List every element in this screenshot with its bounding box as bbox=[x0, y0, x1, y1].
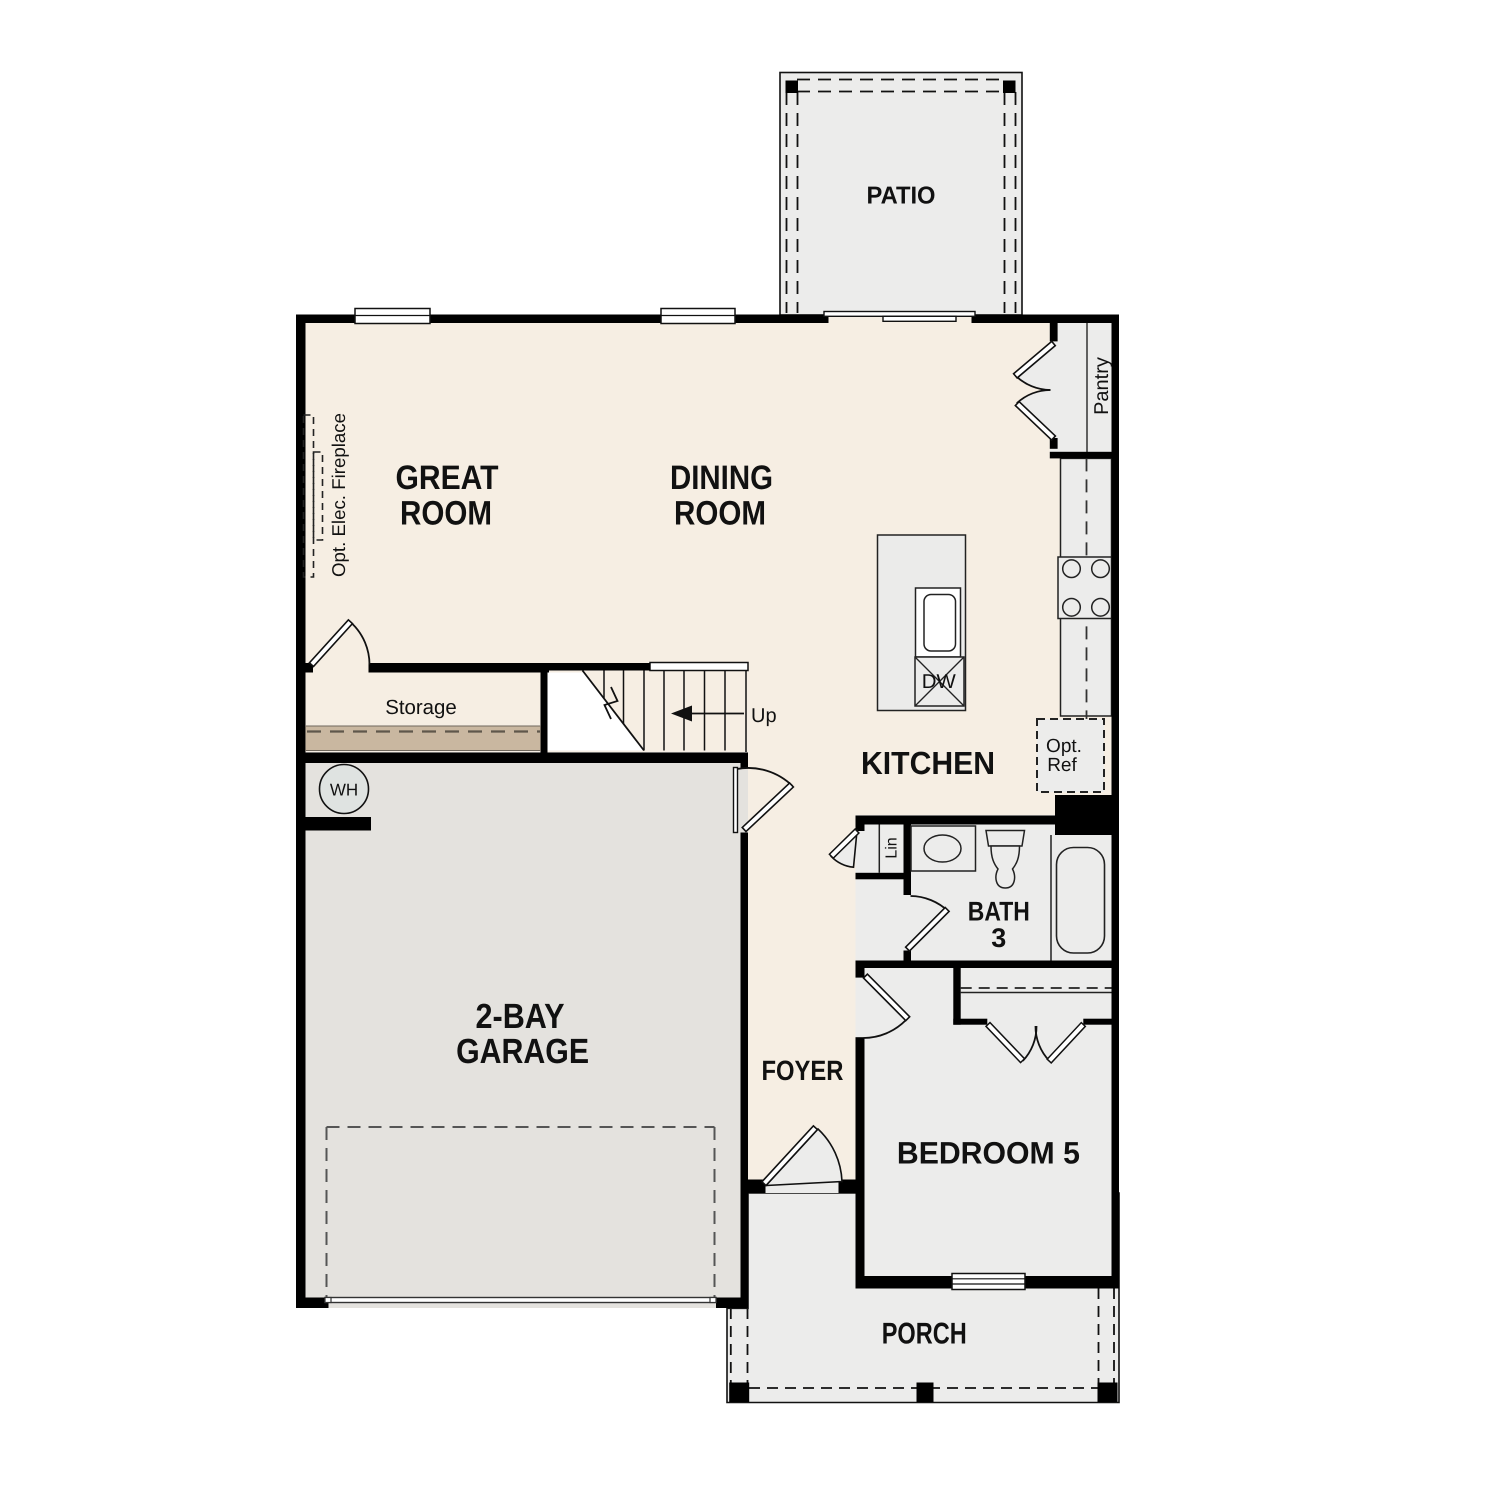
svg-text:WH: WH bbox=[330, 781, 358, 800]
svg-text:ROOM: ROOM bbox=[400, 495, 492, 533]
svg-text:PORCH: PORCH bbox=[882, 1317, 967, 1350]
svg-text:Opt.: Opt. bbox=[1046, 736, 1082, 757]
svg-text:Lin: Lin bbox=[884, 837, 901, 858]
svg-text:BEDROOM 5: BEDROOM 5 bbox=[897, 1135, 1080, 1170]
svg-text:Ref: Ref bbox=[1047, 755, 1077, 776]
svg-text:GARAGE: GARAGE bbox=[456, 1032, 589, 1071]
svg-text:Pantry: Pantry bbox=[1091, 357, 1113, 415]
svg-text:DINING: DINING bbox=[670, 459, 773, 497]
svg-text:KITCHEN: KITCHEN bbox=[861, 745, 995, 781]
svg-text:Storage: Storage bbox=[385, 696, 457, 719]
svg-text:Up: Up bbox=[751, 705, 777, 727]
svg-text:DW: DW bbox=[922, 671, 956, 693]
svg-text:2-BAY: 2-BAY bbox=[476, 997, 565, 1036]
svg-text:GREAT: GREAT bbox=[396, 459, 499, 497]
svg-text:3: 3 bbox=[991, 923, 1006, 953]
svg-text:PATIO: PATIO bbox=[867, 183, 936, 210]
svg-text:ROOM: ROOM bbox=[674, 495, 766, 533]
svg-text:Opt. Elec. Fireplace: Opt. Elec. Fireplace bbox=[328, 413, 349, 577]
svg-text:FOYER: FOYER bbox=[762, 1055, 844, 1086]
